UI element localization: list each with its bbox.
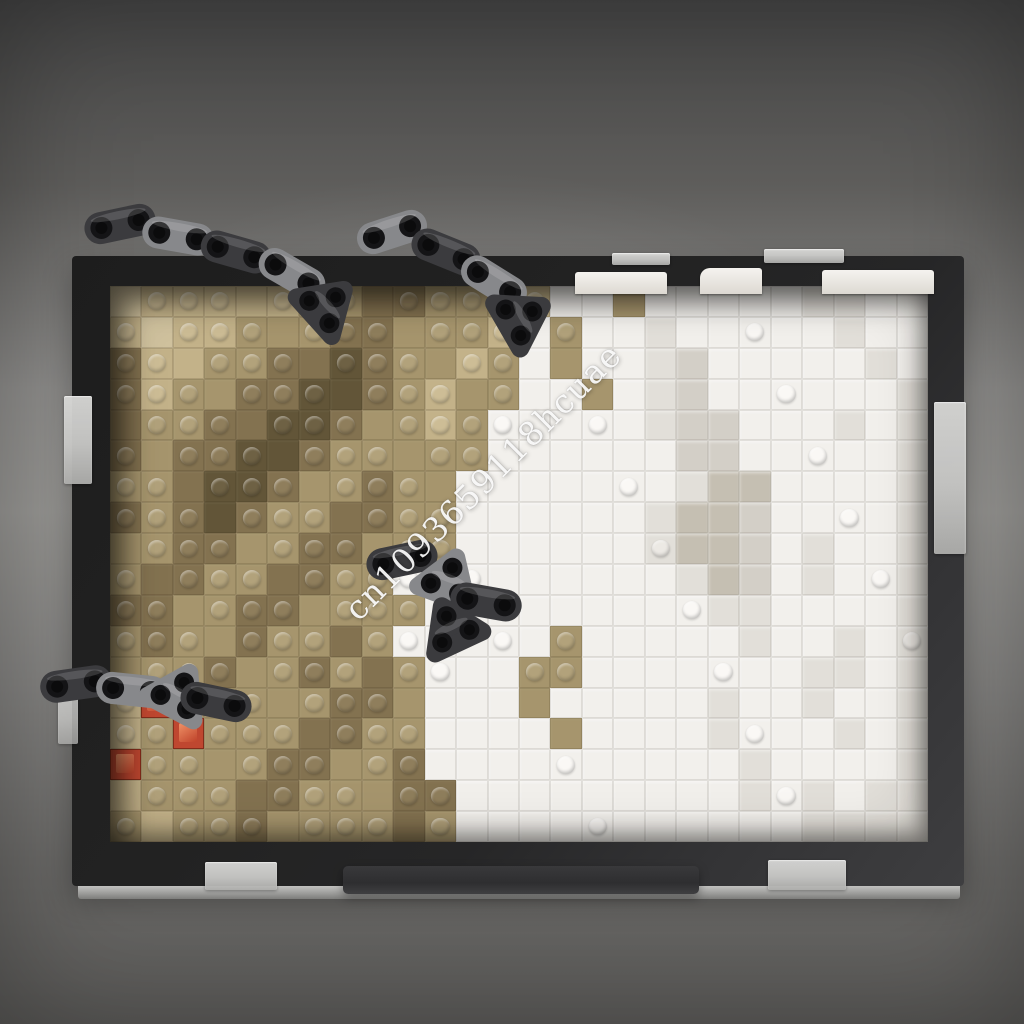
brick-stud [431, 416, 449, 434]
mosaic-cell [110, 780, 141, 811]
clear-connector-tab-right [934, 402, 966, 554]
mosaic-cell [865, 657, 896, 688]
mosaic-cell [267, 502, 298, 533]
brick-stud [148, 725, 166, 743]
brick-stud [305, 509, 323, 527]
mosaic-cell [330, 440, 361, 471]
mosaic-cell [802, 688, 833, 719]
brick-stud [117, 354, 135, 372]
mosaic-cell [488, 595, 519, 626]
mosaic-cell [393, 410, 424, 441]
mosaic-cell [645, 811, 676, 842]
mosaic-cell [456, 379, 487, 410]
mosaic-cell [362, 811, 393, 842]
brick-stud [400, 756, 418, 774]
brick-stud [180, 632, 198, 650]
brick-stud [557, 323, 575, 341]
brick-stud [305, 385, 323, 403]
mosaic-cell [834, 379, 865, 410]
mosaic-cell [488, 317, 519, 348]
mosaic-cell [771, 688, 802, 719]
mosaic-cell [897, 317, 928, 348]
mosaic-cell [834, 348, 865, 379]
brick-stud [305, 818, 323, 836]
mosaic-cell [708, 379, 739, 410]
frame-bottom-bar [343, 866, 699, 894]
mosaic-cell [393, 317, 424, 348]
mosaic-cell [267, 595, 298, 626]
brick-stud [117, 694, 135, 712]
mosaic-cell [141, 502, 172, 533]
brick-stud [274, 354, 292, 372]
brick-stud [431, 385, 449, 403]
mosaic-cell [330, 718, 361, 749]
brick-stud [368, 694, 386, 712]
mosaic-cell [110, 502, 141, 533]
mosaic-cell [236, 348, 267, 379]
clear-foot-tab-bottom-right [768, 860, 846, 890]
clear-connector-tab-top-right [764, 249, 844, 263]
brick-stud [242, 385, 260, 403]
brick-stud [494, 354, 512, 372]
mosaic-cell [771, 718, 802, 749]
mosaic-cell [425, 564, 456, 595]
mosaic-cell [204, 502, 235, 533]
brick-stud [274, 601, 292, 619]
brick-stud [242, 354, 260, 372]
mosaic-cell [708, 564, 739, 595]
mosaic-cell [488, 533, 519, 564]
mosaic-cell [771, 379, 802, 410]
brick-stud [746, 323, 764, 341]
mosaic-cell [897, 564, 928, 595]
brick-stud [242, 818, 260, 836]
mosaic-cell [204, 688, 235, 719]
mosaic-cell [771, 626, 802, 657]
brick-stud [494, 323, 512, 341]
brick-stud [337, 323, 355, 341]
mosaic-cell [645, 502, 676, 533]
mosaic-cell [110, 595, 141, 626]
mosaic-cell [204, 626, 235, 657]
brick-stud [431, 818, 449, 836]
mosaic-cell [267, 440, 298, 471]
mosaic-cell [865, 688, 896, 719]
mosaic-cell [613, 440, 644, 471]
mosaic-cell [267, 780, 298, 811]
mosaic-cell [173, 440, 204, 471]
mosaic-cell [771, 502, 802, 533]
mosaic-cell [141, 718, 172, 749]
brick-stud [148, 509, 166, 527]
mosaic-cell [897, 533, 928, 564]
mosaic-cell [582, 410, 613, 441]
mosaic-cell [897, 718, 928, 749]
mosaic-cell [519, 688, 550, 719]
mosaic-cell [802, 595, 833, 626]
mosaic-cell [834, 780, 865, 811]
mosaic-cell [739, 688, 770, 719]
brick-stud [180, 323, 198, 341]
white-brick-overflow [700, 268, 762, 294]
mosaic-cell [236, 410, 267, 441]
mosaic-cell [299, 626, 330, 657]
mosaic-cell [834, 811, 865, 842]
mosaic-cell [362, 780, 393, 811]
mosaic-cell [393, 379, 424, 410]
brick-stud [274, 725, 292, 743]
brick-stud [305, 540, 323, 558]
brick-stud [180, 509, 198, 527]
lego-picture-frame [72, 256, 964, 886]
brick-stud [180, 663, 198, 681]
brick-stud [305, 323, 323, 341]
brick-stud [117, 570, 135, 588]
brick-stud [117, 447, 135, 465]
brick-stud [274, 787, 292, 805]
brick-stud [148, 756, 166, 774]
mosaic-cell [802, 564, 833, 595]
mosaic-cell [708, 410, 739, 441]
mosaic-cell [173, 657, 204, 688]
brick-stud [211, 818, 229, 836]
brick-stud [211, 787, 229, 805]
mosaic-cell [330, 749, 361, 780]
mosaic-cell [865, 410, 896, 441]
mosaic-cell [676, 688, 707, 719]
mosaic-cell [771, 348, 802, 379]
brick-stud [117, 385, 135, 403]
brick-stud [368, 447, 386, 465]
mosaic-cell [897, 657, 928, 688]
mosaic-cell [393, 471, 424, 502]
brick-stud [117, 632, 135, 650]
brick-stud [557, 663, 575, 681]
mosaic-cell [488, 348, 519, 379]
brick-stud [242, 632, 260, 650]
brick-stud [494, 632, 512, 650]
mosaic-cell [865, 780, 896, 811]
mosaic-cell [582, 471, 613, 502]
brick-stud [337, 540, 355, 558]
brick-stud [274, 478, 292, 496]
mosaic-cell [613, 471, 644, 502]
mosaic-cell [173, 595, 204, 626]
mosaic-cell [425, 595, 456, 626]
mosaic-cell [834, 749, 865, 780]
mosaic-cell [771, 440, 802, 471]
mosaic-cell [645, 718, 676, 749]
brick-stud [117, 323, 135, 341]
brick-stud [242, 323, 260, 341]
mosaic-cell [676, 749, 707, 780]
mosaic-cell [613, 379, 644, 410]
brick-stud [305, 756, 323, 774]
brick-stud [337, 787, 355, 805]
mosaic-cell [204, 749, 235, 780]
mosaic-cell [519, 626, 550, 657]
mosaic-cell [708, 657, 739, 688]
mosaic-cell [708, 471, 739, 502]
mosaic-cell [550, 626, 581, 657]
brick-stud [400, 416, 418, 434]
mosaic-cell [519, 718, 550, 749]
mosaic-cell [897, 440, 928, 471]
mosaic-cell [676, 595, 707, 626]
mosaic-cell [802, 657, 833, 688]
mosaic-cell [676, 410, 707, 441]
mosaic-cell [204, 471, 235, 502]
brick-stud [242, 478, 260, 496]
brick-stud [242, 509, 260, 527]
mosaic-cell [110, 657, 141, 688]
mosaic-cell [236, 780, 267, 811]
mosaic-cell [676, 811, 707, 842]
mosaic-cell [204, 348, 235, 379]
mosaic-cell [267, 657, 298, 688]
mosaic-cell [739, 471, 770, 502]
mosaic-cell [456, 564, 487, 595]
mosaic-cell [897, 502, 928, 533]
mosaic-cell [676, 718, 707, 749]
mosaic-cell [897, 749, 928, 780]
mosaic-cell [141, 595, 172, 626]
mosaic-cell [393, 657, 424, 688]
mosaic-cell [425, 811, 456, 842]
brick-stud [117, 478, 135, 496]
mosaic-cell [204, 780, 235, 811]
mosaic-cell [519, 348, 550, 379]
brick-stud [211, 725, 229, 743]
mosaic-cell [173, 688, 204, 719]
mosaic-cell [834, 440, 865, 471]
brick-stud [211, 694, 229, 712]
brick-stud [557, 756, 575, 774]
brick-stud [148, 601, 166, 619]
mosaic-cell [834, 317, 865, 348]
mosaic-cell [645, 410, 676, 441]
mosaic-cell [236, 379, 267, 410]
brick-stud [148, 354, 166, 372]
brick-stud [368, 354, 386, 372]
brick-stud [180, 540, 198, 558]
mosaic-cell [173, 564, 204, 595]
brick-stud [180, 694, 198, 712]
brick-stud [400, 663, 418, 681]
mosaic-cell [708, 502, 739, 533]
brick-stud [274, 385, 292, 403]
mosaic-cell [613, 564, 644, 595]
mosaic-cell [362, 749, 393, 780]
mosaic-cell [267, 749, 298, 780]
mosaic-cell [645, 749, 676, 780]
mosaic-cell [519, 749, 550, 780]
mosaic-cell [550, 533, 581, 564]
mosaic-cell [834, 564, 865, 595]
mosaic-cell [393, 718, 424, 749]
mosaic-cell [645, 688, 676, 719]
mosaic-cell [425, 286, 456, 317]
mosaic-cell [802, 533, 833, 564]
brick-stud [683, 601, 701, 619]
mosaic-cell [362, 502, 393, 533]
mosaic-cell [299, 564, 330, 595]
mosaic-cell [173, 410, 204, 441]
mosaic-cell [708, 440, 739, 471]
mosaic-cell [236, 440, 267, 471]
brick-stud [840, 509, 858, 527]
brick-stud [148, 787, 166, 805]
mosaic-cell [236, 502, 267, 533]
brick-stud [368, 509, 386, 527]
mosaic-cell [645, 348, 676, 379]
mosaic-cell [173, 379, 204, 410]
mosaic-cell [488, 688, 519, 719]
mosaic-cell [865, 471, 896, 502]
mosaic-cell [519, 471, 550, 502]
brick-stud [242, 756, 260, 774]
mosaic-cell [613, 502, 644, 533]
mosaic-cell [739, 564, 770, 595]
mosaic-cell [110, 317, 141, 348]
mosaic-cell [236, 718, 267, 749]
brick-mosaic-grid [110, 286, 928, 842]
mosaic-cell [645, 657, 676, 688]
mosaic-cell [739, 440, 770, 471]
mosaic-cell [236, 564, 267, 595]
mosaic-cell [204, 564, 235, 595]
mosaic-cell [488, 379, 519, 410]
mosaic-cell [267, 718, 298, 749]
mosaic-cell [834, 718, 865, 749]
mosaic-cell [802, 471, 833, 502]
mosaic-cell [708, 533, 739, 564]
mosaic-cell [425, 379, 456, 410]
brick-stud [526, 663, 544, 681]
mosaic-cell [708, 718, 739, 749]
mosaic-cell [802, 379, 833, 410]
mosaic-cell [708, 688, 739, 719]
clear-connector-tab-left-lower [58, 688, 78, 744]
mosaic-cell [771, 286, 802, 317]
mosaic-cell [362, 286, 393, 317]
mosaic-cell [141, 533, 172, 564]
mosaic-cell [802, 811, 833, 842]
mosaic-cell [173, 718, 204, 749]
mosaic-cell [141, 811, 172, 842]
mosaic-cell [236, 749, 267, 780]
mosaic-cell [897, 780, 928, 811]
mosaic-cell [204, 379, 235, 410]
mosaic-cell [299, 595, 330, 626]
mosaic-cell [676, 440, 707, 471]
brick-stud [211, 292, 229, 310]
brick-stud [368, 323, 386, 341]
mosaic-cell [425, 718, 456, 749]
brick-stud [431, 323, 449, 341]
mosaic-cell [362, 657, 393, 688]
mosaic-cell [393, 688, 424, 719]
mosaic-cell [865, 595, 896, 626]
mosaic-cell [519, 564, 550, 595]
mosaic-cell [299, 780, 330, 811]
mosaic-cell [173, 811, 204, 842]
mosaic-cell [613, 533, 644, 564]
mosaic-cell [425, 626, 456, 657]
mosaic-cell [613, 749, 644, 780]
mosaic-cell [865, 502, 896, 533]
mosaic-cell [204, 718, 235, 749]
mosaic-cell [393, 811, 424, 842]
mosaic-cell [771, 595, 802, 626]
brick-stud [337, 447, 355, 465]
mosaic-cell [141, 379, 172, 410]
mosaic-cell [330, 410, 361, 441]
mosaic-cell [739, 657, 770, 688]
mosaic-cell [299, 379, 330, 410]
brick-stud [463, 570, 481, 588]
mosaic-cell [676, 348, 707, 379]
brick-stud [180, 292, 198, 310]
brick-stud [242, 601, 260, 619]
mosaic-cell [550, 688, 581, 719]
mosaic-cell [488, 718, 519, 749]
mosaic-cell [739, 626, 770, 657]
mosaic-cell [519, 317, 550, 348]
mosaic-cell [676, 626, 707, 657]
mosaic-cell [865, 626, 896, 657]
mosaic-cell [550, 811, 581, 842]
mosaic-cell [802, 317, 833, 348]
mosaic-cell [488, 626, 519, 657]
mosaic-cell [425, 749, 456, 780]
brick-stud [274, 509, 292, 527]
mosaic-cell [834, 533, 865, 564]
mosaic-cell [897, 410, 928, 441]
mosaic-cell [141, 780, 172, 811]
mosaic-cell [582, 657, 613, 688]
brick-stud [368, 632, 386, 650]
mosaic-cell [645, 595, 676, 626]
mosaic-cell [330, 317, 361, 348]
clear-foot-tab-bottom-left [205, 862, 277, 890]
mosaic-cell [110, 626, 141, 657]
mosaic-cell [519, 286, 550, 317]
white-brick-overflow [822, 270, 934, 294]
mosaic-cell [739, 317, 770, 348]
mosaic-cell [110, 749, 141, 780]
mosaic-cell [802, 502, 833, 533]
brick-stud [777, 787, 795, 805]
mosaic-cell [456, 286, 487, 317]
mosaic-cell [173, 348, 204, 379]
mosaic-cell [299, 410, 330, 441]
mosaic-cell [897, 348, 928, 379]
brick-stud [400, 787, 418, 805]
mosaic-cell [110, 379, 141, 410]
brick-stud [337, 292, 355, 310]
mosaic-cell [488, 286, 519, 317]
brick-stud [809, 447, 827, 465]
mosaic-cell [362, 379, 393, 410]
brick-stud [431, 663, 449, 681]
mosaic-cell [708, 626, 739, 657]
brick-stud [148, 292, 166, 310]
mosaic-cell [550, 502, 581, 533]
mosaic-cell [267, 348, 298, 379]
mosaic-cell [425, 410, 456, 441]
brick-stud [368, 756, 386, 774]
